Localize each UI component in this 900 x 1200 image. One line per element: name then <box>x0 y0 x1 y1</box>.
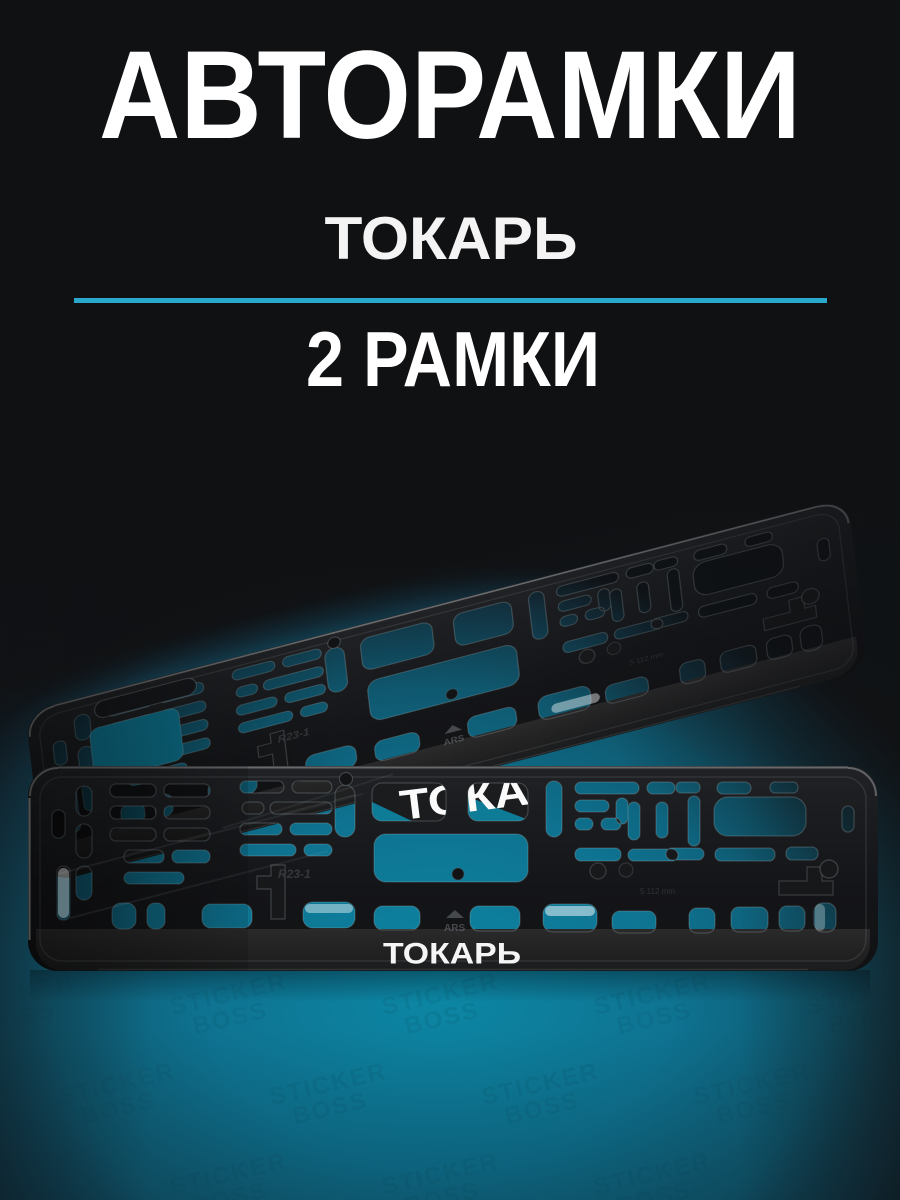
svg-text:ТОКАРЬ: ТОКАРЬ <box>325 205 578 272</box>
svg-text:ТОКАРЬ: ТОКАРЬ <box>383 938 521 971</box>
svg-text:АВТОРАМКИ: АВТОРАМКИ <box>99 26 801 165</box>
svg-text:2 РАМКИ: 2 РАМКИ <box>306 315 600 403</box>
